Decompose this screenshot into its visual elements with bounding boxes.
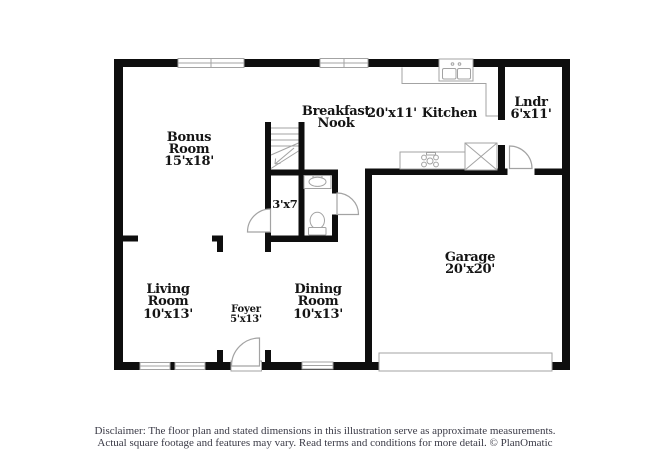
room-label-hall-closet: 3'x7' [272,198,300,210]
room-dims: 5'x13' [222,315,270,325]
stairs [271,128,299,169]
disclaimer: Disclaimer: The floor plan and stated di… [0,426,650,449]
room-dims: 15'x18' [160,156,218,168]
disclaimer-line-2: Actual square footage and features may v… [0,438,650,450]
room-name: Breakfast Nook [298,106,374,131]
window-living-room-1 [140,363,170,370]
room-label-breakfast-nook: Breakfast Nook [298,106,374,131]
room-name: Kitchen [422,106,477,121]
room-name: Bonus Room [160,132,218,157]
room-dims: 20'x11' [367,106,417,121]
entry-door [231,338,262,371]
room-dims: 10'x13' [141,309,195,321]
floor-plan-drawing [0,0,650,473]
room-dims: 20'x20' [439,264,501,276]
room-name: Dining Room [291,284,345,309]
window-breakfast-nook-top [320,59,368,68]
room-label-garage: Garage 20'x20' [439,252,501,277]
kitchen-sink [439,59,473,81]
room-label-bonus-room: Bonus Room 15'x18' [160,132,218,169]
garage-door [379,353,552,371]
room-label-kitchen: 20'x11'Kitchen [367,108,477,120]
floor-plan-illustration: Bonus Room 15'x18' Breakfast Nook 20'x11… [0,0,650,473]
room-label-dining-room: Dining Room 10'x13' [291,284,345,321]
water-heater [465,143,497,170]
closet-door [248,209,271,232]
room-dims: 10'x13' [291,309,345,321]
stove [400,152,467,169]
room-label-living-room: Living Room 10'x13' [141,284,195,321]
bathroom-door [337,193,359,215]
window-living-room-2 [175,363,205,370]
disclaimer-line-1: Disclaimer: The floor plan and stated di… [0,426,650,438]
toilet [309,212,327,235]
bathroom-sink [304,176,331,189]
room-dims: 3'x7' [272,197,300,211]
room-label-laundry: Lndr 6'x11' [503,97,559,122]
room-name: Living Room [141,284,195,309]
room-dims: 6'x11' [503,109,559,121]
laundry-door [508,146,535,177]
room-label-foyer: Foyer 5'x13' [222,305,270,324]
window-bonus-room-top [178,59,244,68]
window-dining-room [302,362,333,369]
